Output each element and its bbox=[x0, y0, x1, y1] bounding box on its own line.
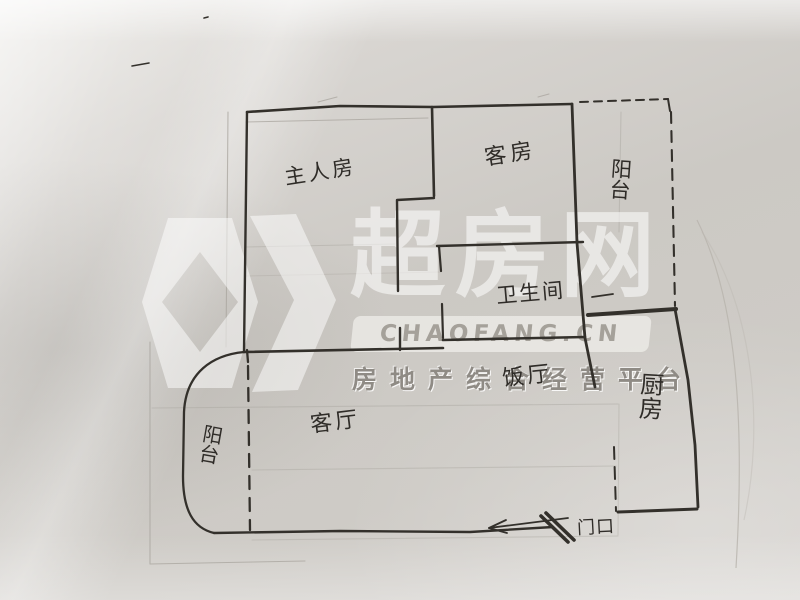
wall-bathroom-bottom bbox=[443, 337, 585, 340]
wall-guest-right bbox=[572, 104, 595, 387]
wall-living-top bbox=[244, 348, 443, 352]
wall-top bbox=[247, 104, 572, 112]
balcony-top-corner-tick bbox=[668, 99, 670, 111]
wall-kitchen-right bbox=[675, 309, 698, 507]
balcony-top-dash bbox=[580, 99, 668, 102]
wall-kitchen-top bbox=[588, 309, 676, 315]
entrance-label: 门口 bbox=[576, 512, 615, 540]
room-label-bathroom: 卫生间 bbox=[495, 274, 566, 310]
wall-bathroom-top bbox=[437, 242, 583, 246]
wall-bathroom-left-lower bbox=[442, 304, 443, 338]
kitchen-top-tick bbox=[592, 294, 613, 297]
wall-left bbox=[244, 112, 247, 352]
room-label-balcony-top: 阳台 bbox=[602, 157, 637, 225]
balcony-left-divider-dash bbox=[248, 366, 250, 530]
room-label-dining-room: 饭厅 bbox=[500, 355, 553, 392]
room-label-living-room: 客厅 bbox=[308, 401, 362, 439]
balcony-right-dash bbox=[671, 112, 675, 306]
ink-speck-top bbox=[204, 17, 208, 18]
wall-master-guest-divider bbox=[432, 107, 434, 196]
wall-divider-notch bbox=[397, 198, 434, 291]
kitchen-door-dash bbox=[614, 447, 616, 511]
floorplan-photo: 超房网 CHAOFANG.CN 房地产综合经营平台 bbox=[0, 0, 800, 600]
wall-kitchen-bottom bbox=[618, 509, 697, 512]
balcony-left-divider-stub bbox=[247, 350, 248, 362]
ink-speck-left bbox=[132, 63, 149, 66]
wall-bathroom-left-upper bbox=[439, 246, 441, 271]
room-label-kitchen: 厨房 bbox=[629, 371, 669, 465]
ink-sketch bbox=[0, 0, 800, 600]
